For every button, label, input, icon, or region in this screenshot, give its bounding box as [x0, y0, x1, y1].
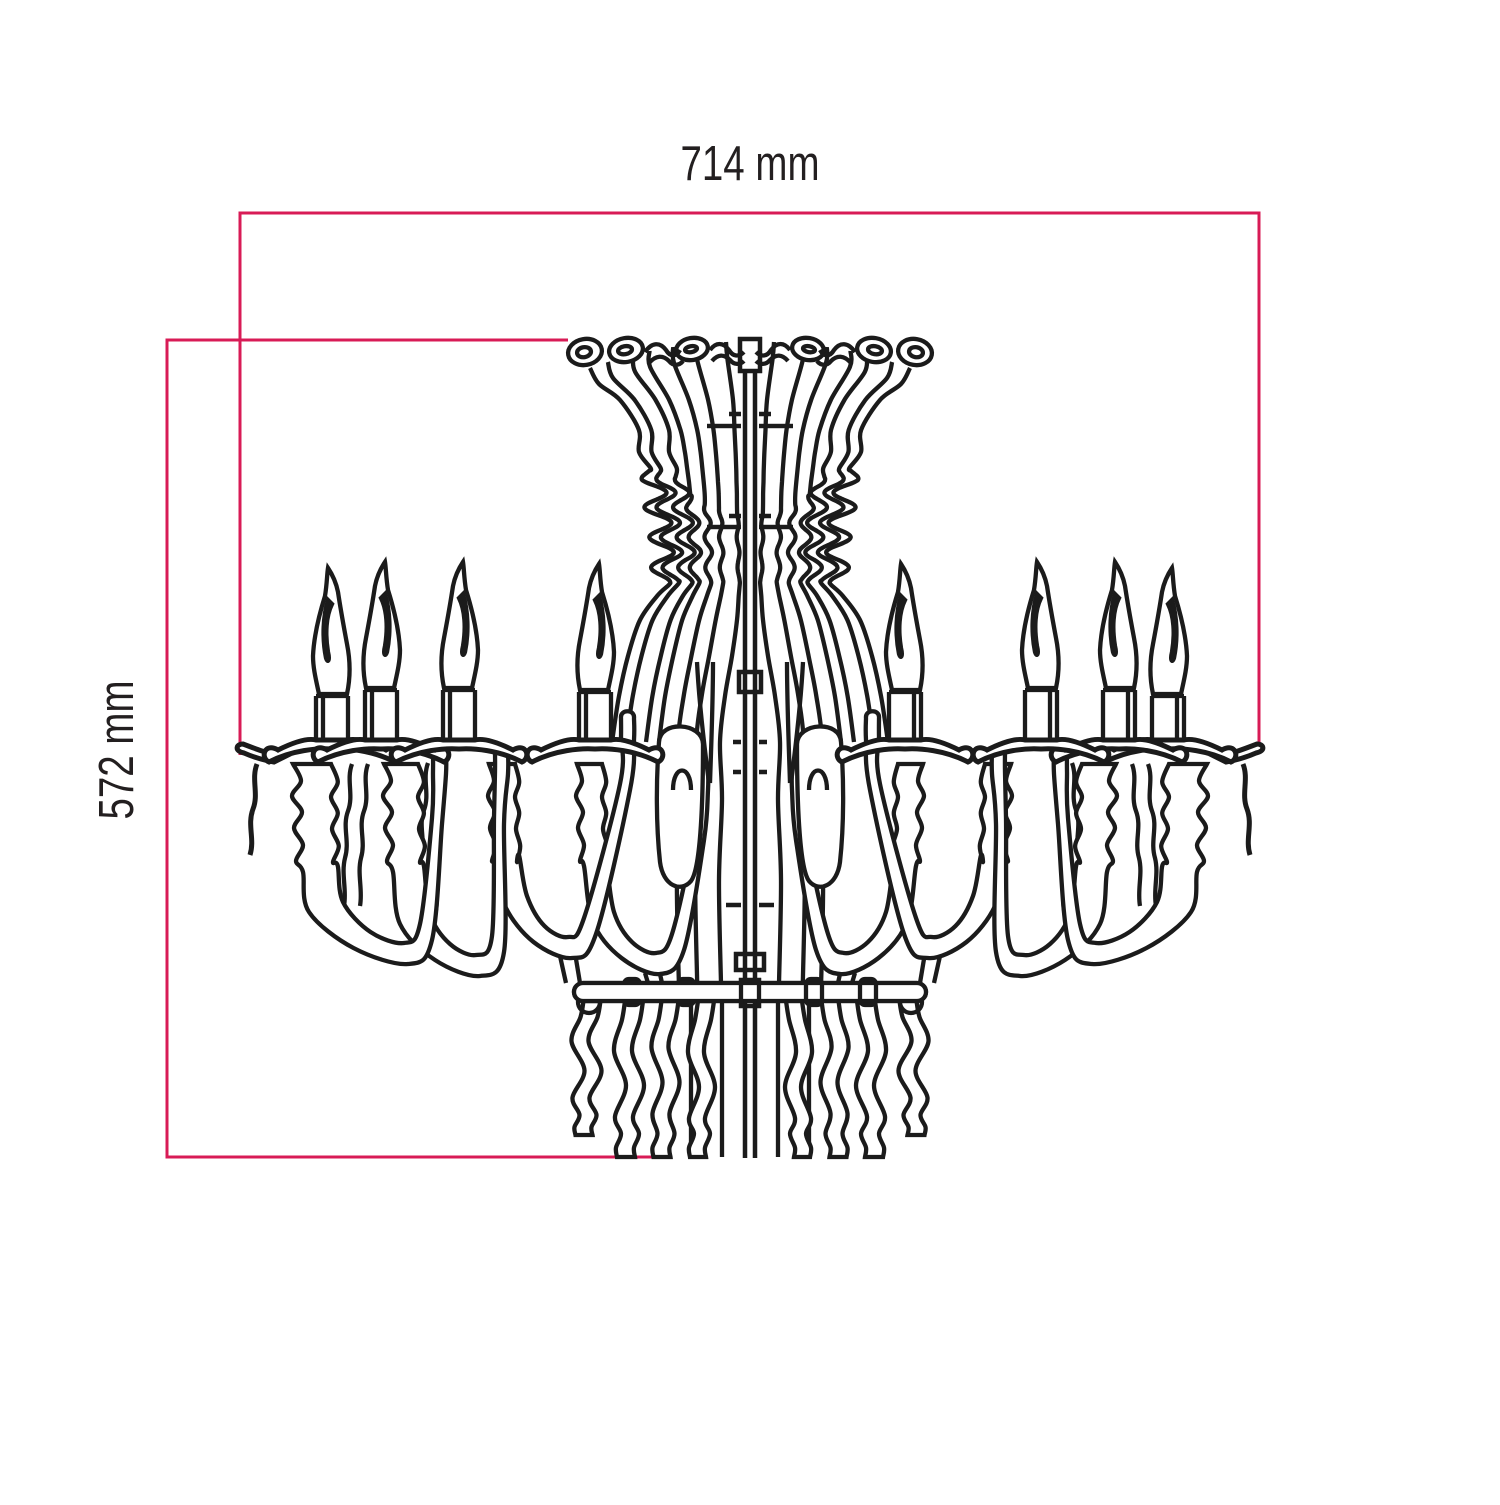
svg-text:572 mm: 572 mm — [90, 681, 144, 820]
svg-text:714 mm: 714 mm — [681, 137, 820, 191]
